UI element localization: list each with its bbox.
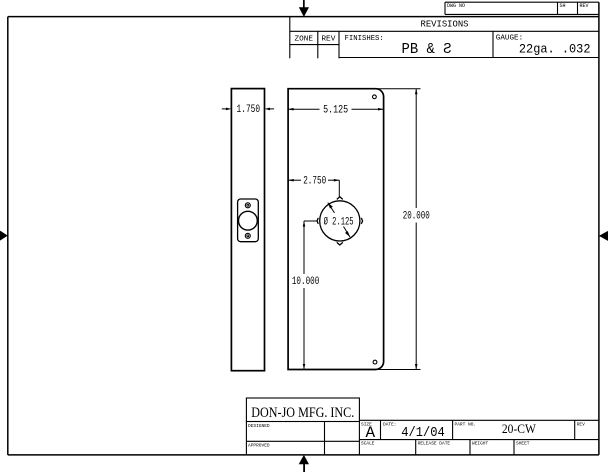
svg-text:5.125: 5.125 (323, 104, 348, 116)
svg-text:1.750: 1.750 (237, 104, 261, 116)
svg-text:SH: SH (560, 3, 566, 9)
svg-text:PB & Ƨ: PB & Ƨ (402, 42, 452, 58)
svg-text:DWG NO: DWG NO (447, 3, 465, 9)
svg-text:APPROVED: APPROVED (248, 443, 270, 449)
svg-text:REV: REV (321, 36, 336, 44)
svg-text:PART NO.: PART NO. (455, 421, 477, 427)
svg-text:RELEASE DATE: RELEASE DATE (418, 441, 451, 447)
svg-text:4/1/04: 4/1/04 (401, 426, 445, 441)
svg-text:WEIGHT: WEIGHT (472, 441, 489, 447)
svg-text:ZONE: ZONE (295, 36, 314, 44)
svg-text:SHEET: SHEET (516, 441, 530, 447)
svg-text:Ø 2.125: Ø 2.125 (324, 216, 354, 228)
svg-text:REV: REV (577, 421, 585, 427)
svg-text:10.000: 10.000 (292, 276, 320, 288)
svg-text:20.000: 20.000 (403, 211, 430, 223)
svg-text:REV: REV (580, 3, 589, 9)
svg-text:22ga. .032: 22ga. .032 (519, 42, 591, 57)
svg-text:A: A (365, 424, 375, 442)
svg-text:2.750: 2.750 (303, 175, 326, 187)
svg-text:DON-JO MFG. INC.: DON-JO MFG. INC. (251, 405, 354, 421)
svg-text:FINISHES:: FINISHES: (345, 35, 384, 43)
svg-text:REVISIONS: REVISIONS (421, 20, 469, 30)
svg-text:DESIGNED: DESIGNED (248, 423, 270, 429)
svg-text:DATE:: DATE: (383, 421, 397, 427)
svg-text:SCALE: SCALE (361, 441, 375, 447)
svg-text:20-CW: 20-CW (502, 421, 537, 436)
